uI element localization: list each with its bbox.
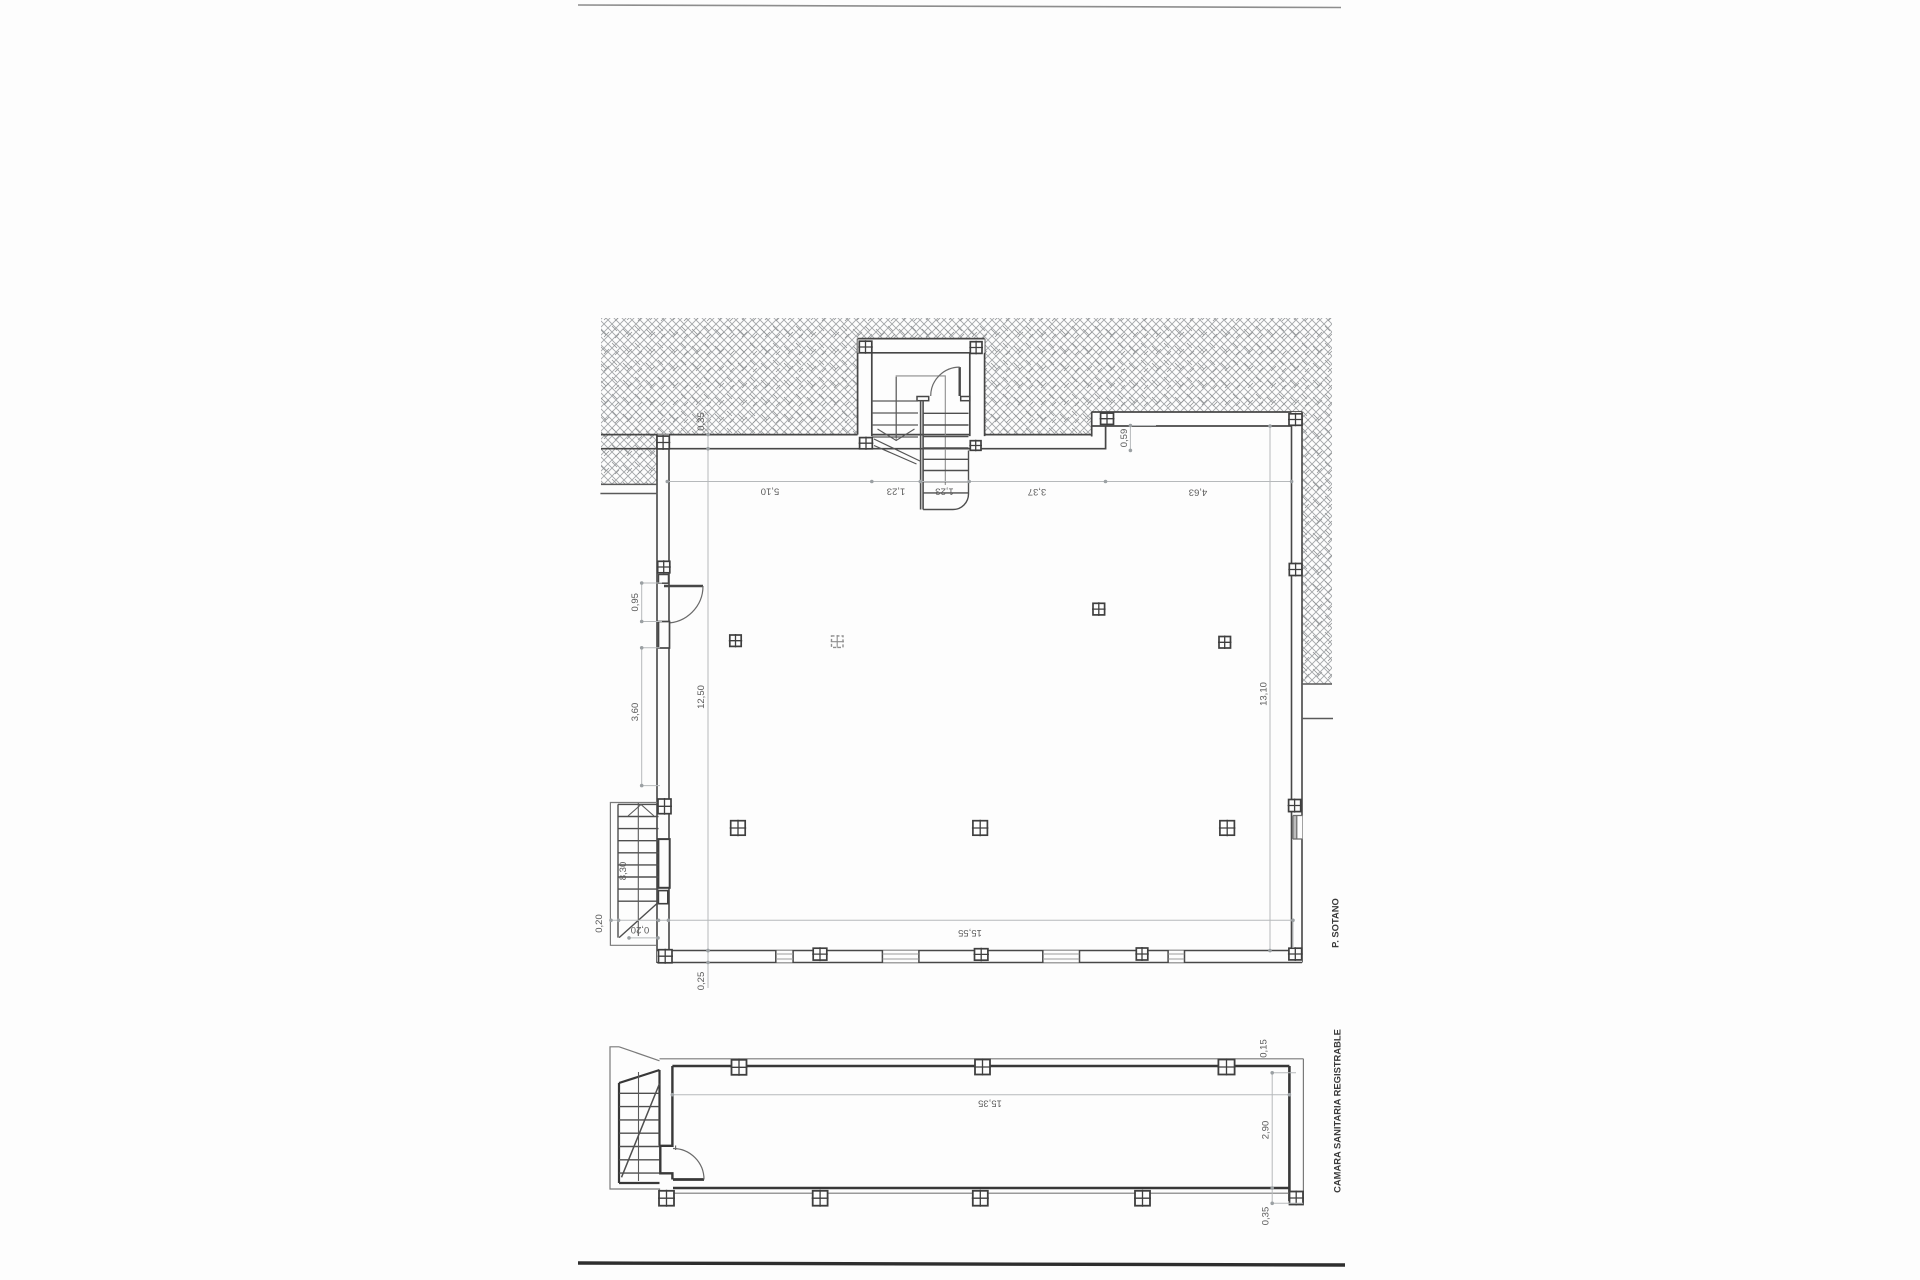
svg-text:0,59: 0,59 (1119, 429, 1130, 448)
svg-text:0,20: 0,20 (631, 924, 650, 935)
svg-text:2,90: 2,90 (1261, 1121, 1272, 1140)
svg-text:8,30: 8,30 (618, 862, 629, 881)
svg-text:0,20: 0,20 (594, 914, 605, 933)
svg-text:1,23: 1,23 (935, 486, 954, 497)
svg-text:0,35: 0,35 (696, 412, 707, 431)
svg-text:0,35: 0,35 (1261, 1207, 1272, 1226)
svg-text:1,23: 1,23 (887, 486, 906, 497)
svg-text:15,35: 15,35 (978, 1098, 1002, 1109)
svg-text:12,50: 12,50 (696, 685, 707, 709)
svg-text:0,95: 0,95 (630, 593, 641, 612)
svg-text:4,63: 4,63 (1189, 487, 1208, 498)
svg-text:13,10: 13,10 (1259, 682, 1270, 706)
svg-text:3,60: 3,60 (630, 703, 641, 722)
svg-text:0,15: 0,15 (1259, 1039, 1270, 1058)
svg-text:15,55: 15,55 (958, 927, 982, 938)
svg-text:P. SOTANO: P. SOTANO (1330, 898, 1341, 948)
svg-text:3,37: 3,37 (1028, 486, 1047, 497)
svg-text:0,25: 0,25 (696, 972, 707, 991)
svg-text:5,10: 5,10 (761, 486, 780, 497)
svg-text:CAMARA SANITARIA REGISTRABLE: CAMARA SANITARIA REGISTRABLE (1332, 1029, 1343, 1193)
